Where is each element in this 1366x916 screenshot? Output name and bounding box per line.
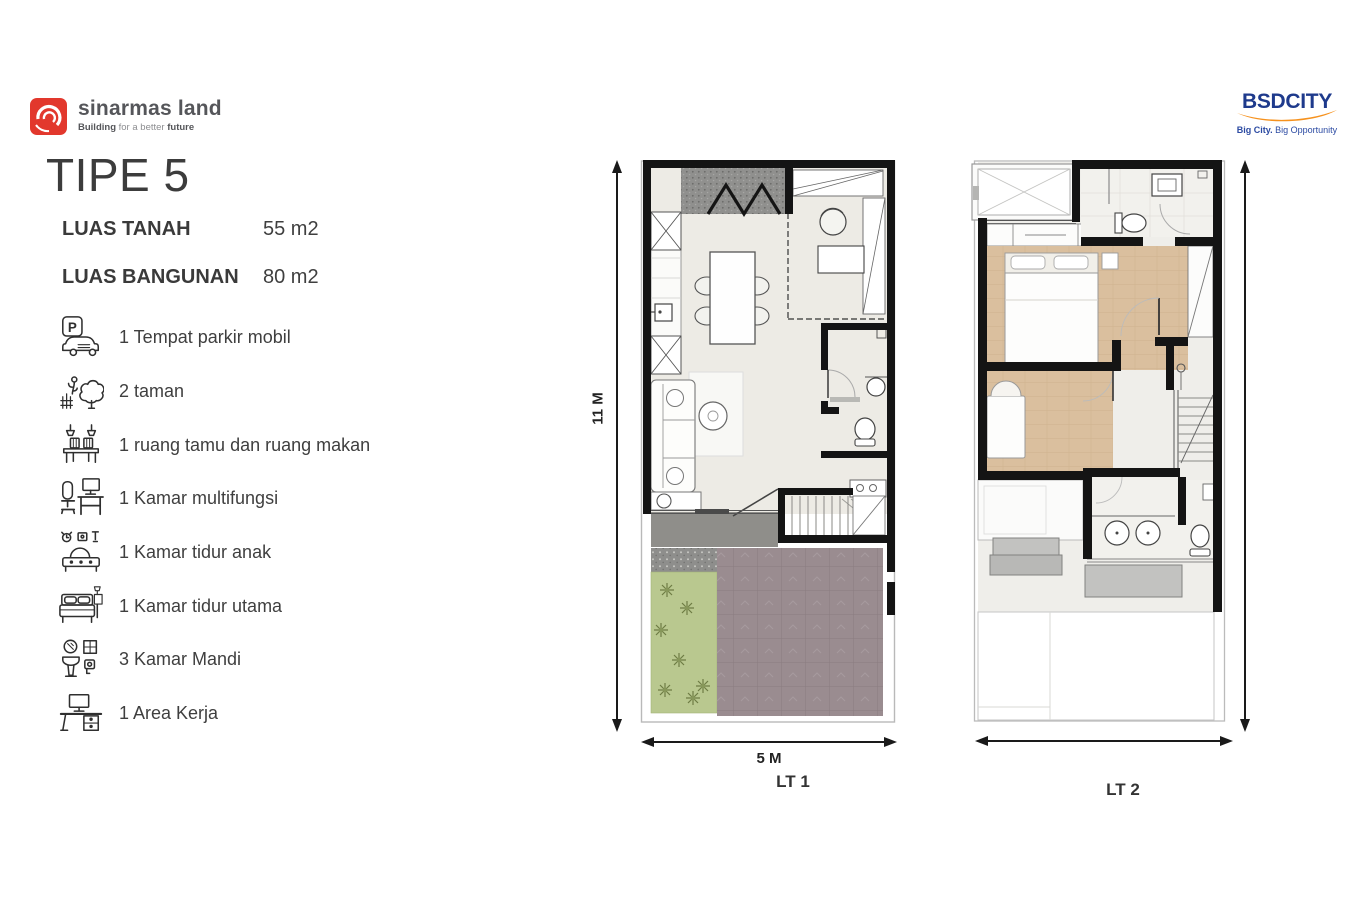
floorplan-lt1 [637,158,899,730]
bath-icon [58,636,104,682]
sinarmas-land-logo: sinarmas land Building for a better futu… [30,98,222,135]
lt1-label: LT 1 [665,772,921,792]
spec-value: 80 m2 [263,266,319,289]
floorplan-lt2-drawing [970,158,1232,730]
feature-living-dining: 1 ruang tamu dan ruang makan [58,418,370,472]
kid-bed-icon [58,529,104,575]
lt2-label: LT 2 [995,780,1251,800]
page-title: TIPE 5 [46,148,190,202]
feature-label: 1 Kamar tidur utama [119,596,282,617]
bed-icon [58,583,104,629]
lt1-carport [717,548,883,716]
spec-label: LUAS BANGUNAN [62,266,239,288]
parking-icon: P [58,314,104,360]
lt1-kitchen [651,212,681,374]
floorplan-lt2 [970,158,1232,730]
lt2-master-bedroom [987,246,1188,377]
multiroom-icon [58,475,104,521]
feature-kid-bedroom: 1 Kamar tidur anak [58,525,271,579]
lt1-height-label: 11 M [590,379,607,439]
lt1-entry-mat [681,168,785,214]
bsd-brand-text: BSDCITY [1233,92,1341,112]
lt1-width-label: 5 M [641,750,897,767]
lt1-gravel-strip [651,548,717,572]
sinarmas-brand-text: sinarmas land [78,98,222,120]
feature-parking: P 1 Tempat parkir mobil [58,310,291,364]
sinarmas-logo-icon [30,98,67,135]
lt2-wardrobe [1188,246,1213,337]
feature-garden: 2 taman [58,364,184,418]
feature-master-bedroom: 1 Kamar tidur utama [58,579,282,633]
feature-label: 1 Tempat parkir mobil [119,327,291,348]
svg-text:P: P [68,320,77,335]
spec-luas-tanah: LUAS TANAH 55 m2 [62,218,191,244]
bsd-city-logo: BSDCITY Big City. Big Opportunity [1233,92,1341,135]
feature-bathroom: 3 Kamar Mandi [58,632,241,686]
feature-label: 1 ruang tamu dan ruang makan [119,435,370,456]
lt2-width-arrow [975,733,1233,749]
sinarmas-tagline: Building for a better future [78,122,222,133]
feature-work-area: 1 Area Kerja [58,686,218,740]
lt1-garden [651,572,717,713]
feature-label: 3 Kamar Mandi [119,649,241,670]
lt2-roof-below [978,612,1214,720]
lt2-canopy [1085,565,1182,597]
dining-icon [58,422,104,468]
lt2-height-arrow [1236,160,1254,732]
lt2-kid-bedroom [987,371,1113,471]
feature-label: 2 taman [119,381,184,402]
spec-value: 55 m2 [263,218,319,241]
feature-multiroom: 1 Kamar multifungsi [58,471,278,525]
feature-label: 1 Kamar multifungsi [119,488,278,509]
lt2-bathroom-top [1081,167,1213,237]
feature-label: 1 Area Kerja [119,703,218,724]
bsd-tagline: Big City. Big Opportunity [1233,125,1341,135]
work-desk-icon [58,690,104,736]
spec-label: LUAS TANAH [62,218,191,240]
garden-icon [58,368,104,414]
lt1-width-arrow [641,734,897,750]
floorplan-lt1-drawing [637,158,899,730]
lt1-height-arrow [608,160,626,732]
lt2-balcony [972,164,1076,224]
spec-luas-bangunan: LUAS BANGUNAN 80 m2 [62,266,239,292]
feature-label: 1 Kamar tidur anak [119,542,271,563]
lt1-terrace [651,512,778,547]
